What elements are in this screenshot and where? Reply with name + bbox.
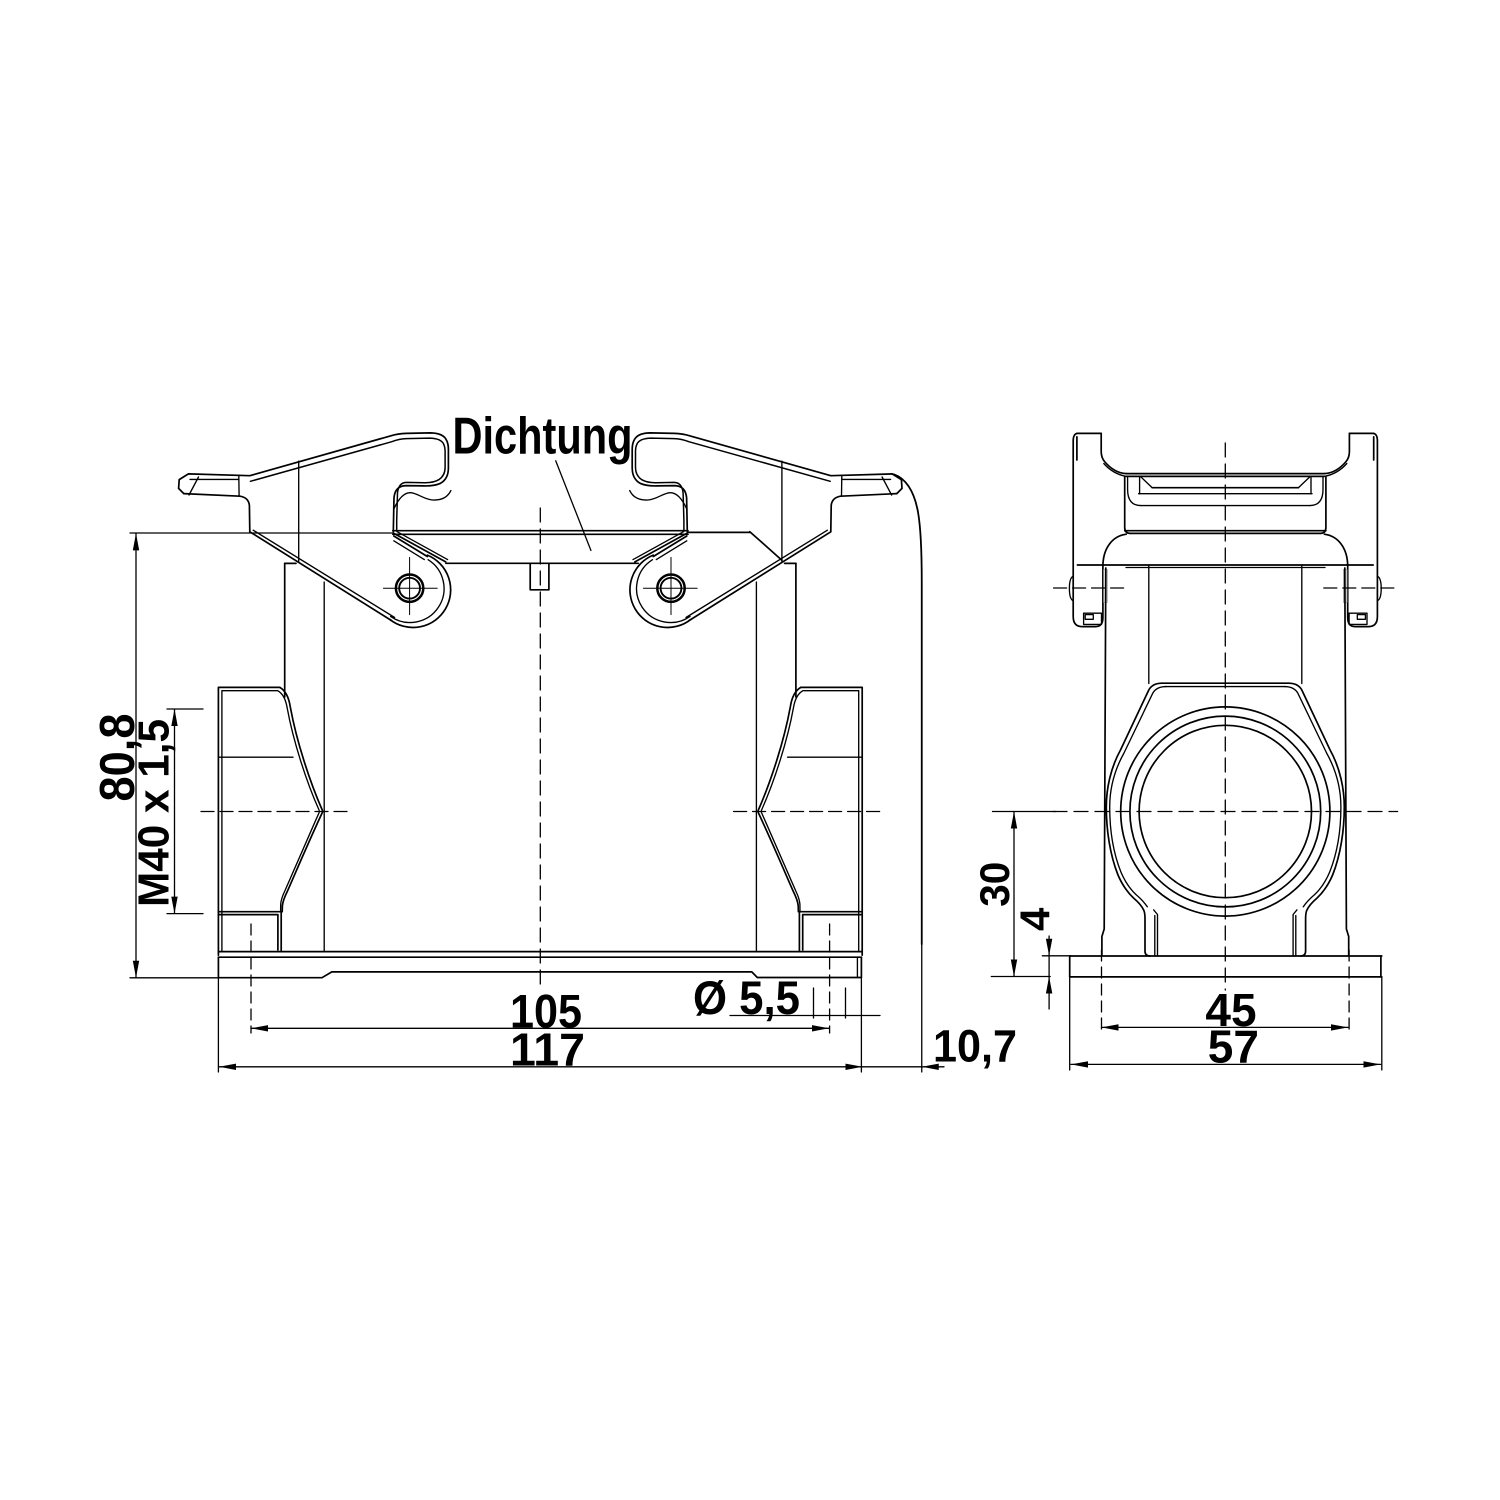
svg-text:117: 117 bbox=[510, 1024, 585, 1076]
svg-text:57: 57 bbox=[1208, 1021, 1259, 1073]
svg-text:10,7: 10,7 bbox=[933, 1021, 1017, 1072]
svg-text:Ø 5,5: Ø 5,5 bbox=[693, 971, 800, 1024]
svg-text:30: 30 bbox=[971, 862, 1018, 907]
svg-text:M40 x 1,5: M40 x 1,5 bbox=[129, 719, 178, 907]
svg-text:4: 4 bbox=[1012, 907, 1059, 931]
svg-text:Dichtung: Dichtung bbox=[453, 408, 633, 466]
